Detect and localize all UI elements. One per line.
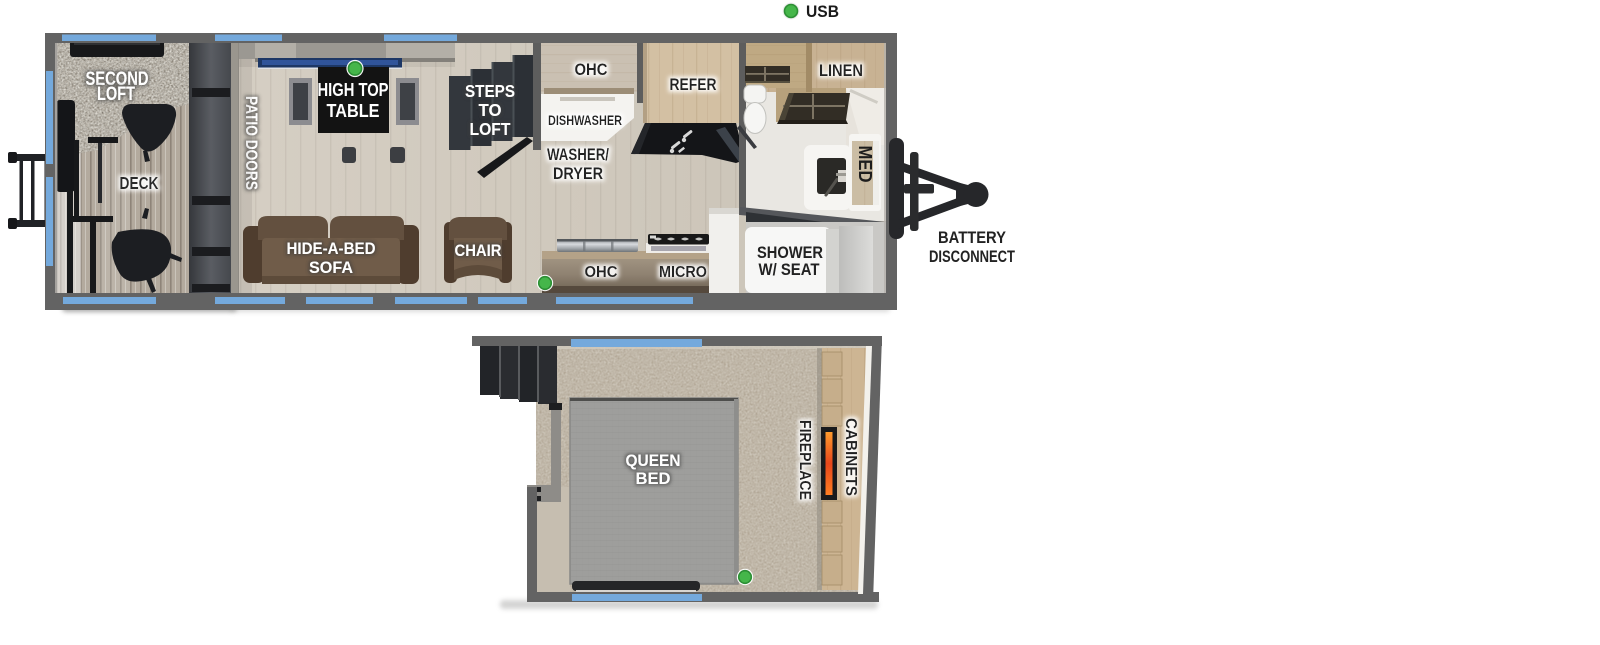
svg-text:QUEEN: QUEEN: [626, 452, 681, 470]
svg-text:USB: USB: [806, 3, 839, 21]
svg-text:DRYER: DRYER: [553, 164, 603, 183]
svg-text:HIDE-A-BED: HIDE-A-BED: [287, 239, 376, 258]
svg-text:BATTERY: BATTERY: [938, 229, 1006, 247]
svg-text:WASHER/: WASHER/: [547, 145, 609, 164]
svg-text:DECK: DECK: [120, 173, 159, 193]
svg-text:CABINETS: CABINETS: [842, 418, 859, 496]
svg-text:CHAIR: CHAIR: [455, 241, 502, 260]
svg-text:BED: BED: [636, 470, 671, 488]
svg-text:MICRO: MICRO: [659, 264, 707, 281]
svg-text:FIREPLACE: FIREPLACE: [796, 420, 813, 500]
svg-text:TABLE: TABLE: [327, 101, 380, 121]
svg-text:SHOWER: SHOWER: [757, 244, 823, 262]
svg-text:HIGH TOP: HIGH TOP: [318, 80, 389, 100]
svg-text:SOFA: SOFA: [309, 258, 353, 277]
svg-text:W/ SEAT: W/ SEAT: [759, 261, 820, 279]
svg-text:DISCONNECT: DISCONNECT: [929, 248, 1015, 266]
svg-text:LOFT: LOFT: [470, 119, 511, 139]
svg-text:OHC: OHC: [575, 60, 608, 79]
svg-text:TO: TO: [479, 100, 502, 120]
svg-text:STEPS: STEPS: [465, 81, 515, 101]
svg-text:OHC: OHC: [585, 264, 618, 281]
svg-text:MED: MED: [855, 146, 875, 183]
svg-text:LOFT: LOFT: [97, 84, 135, 105]
svg-text:DISHWASHER: DISHWASHER: [548, 113, 622, 128]
svg-text:LINEN: LINEN: [819, 62, 863, 80]
svg-text:REFER: REFER: [670, 75, 717, 94]
